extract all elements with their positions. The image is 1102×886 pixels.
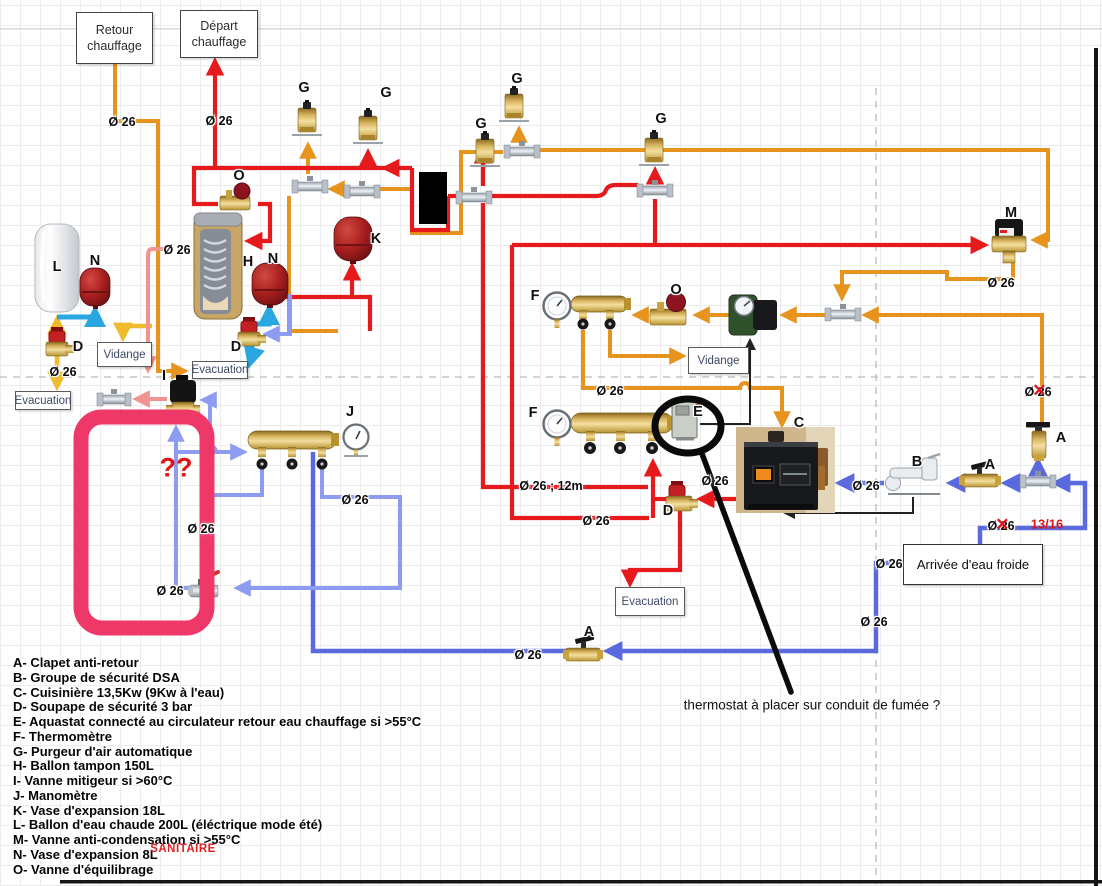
label-box-evacuation-bottom: Evacuation [615,587,685,616]
legend-item-b: B- Groupe de sécurité DSA [13,670,180,685]
pipe-size-label: Ø 26 [156,584,183,598]
component-letter-o: O [233,168,244,184]
label-box-retour-chauffage: Retour chauffage [76,12,153,64]
label-box-evacuation-left: Evacuation [15,391,71,410]
component-letter-d: D [231,339,241,355]
thermometer-icons [544,293,571,447]
annotation-question-marks: ?? [160,453,193,484]
legend-item-e: E- Aquastat connecté au circulateur reto… [13,714,421,729]
pipe-size-label: Ø 26 [987,519,1014,533]
pipe-size-label: Ø 26 [860,615,887,629]
legend-item-d: D- Soupape de sécurité 3 bar [13,699,192,714]
component-letter-g: G [298,80,309,96]
component-letter-n: N [90,253,100,269]
annotation-shapes [81,399,791,692]
bottom-border [60,880,1102,884]
pipe-size-label: Ø 26 [987,276,1014,290]
annotation-pipe-ratio: 13/16 [1031,517,1064,532]
pipe-size-label: Ø 26 [205,114,232,128]
diagram-canvas: Ø 26Ø 26Ø 26Ø 26Ø 26Ø 26Ø 26Ø 26Ø 26 ; 1… [0,0,1102,886]
component-letter-i: I [162,368,166,384]
pipe-size-label: Ø 26 [596,384,623,398]
legend-item-c: C- Cuisinière 13,5Kw (9Kw à l'eau) [13,685,224,700]
pipe-size-label: Ø 26 [701,474,728,488]
component-letter-f: F [531,288,540,304]
legend-item-g: G- Purgeur d'air automatique [13,744,192,759]
right-border [1094,48,1098,886]
pipe-size-label: Ø 26 [582,514,609,528]
buffer-tank-icon [194,213,242,319]
component-letter-g: G [511,71,522,87]
pipe-size-label: Ø 26 [341,493,368,507]
pipe-size-label: Ø 26 [514,648,541,662]
component-letter-c: C [794,415,804,431]
component-letter-d: D [73,339,83,355]
component-letter-a: A [985,457,995,473]
component-letter-a: A [584,624,594,640]
pipe-size-label: Ø 26 ; 12m [519,479,582,493]
annotation-sanitaire: SANITAIRE [150,843,216,855]
component-letter-o: O [670,282,681,298]
component-letter-b: B [912,454,922,470]
component-letter-a: A [1056,430,1066,446]
component-letter-g: G [475,116,486,132]
label-box-vidange-left: Vidange [97,342,152,367]
legend-item-a: A- Clapet anti-retour [13,655,139,670]
legend-item-n: N- Vase d'expansion 8L [13,847,158,862]
pipe-size-label: Ø 26 [852,479,879,493]
anti-condensation-valve-icon [992,219,1026,263]
aquastat-icon [672,401,710,441]
component-letter-k: K [371,231,381,247]
cookstove-icon [736,427,835,513]
component-letter-l: L [53,259,62,275]
component-letter-e: E [693,404,703,420]
label-box-evacuation-mid: Evacuation [192,361,248,379]
component-letter-f: F [529,405,538,421]
pipe-size-label: Ø 26 [187,522,214,536]
manometer-icon [344,425,369,458]
component-letter-d: D [663,503,673,519]
pipe-size-label: Ø 26 [875,557,902,571]
annotation-thermostat-note: thermostat à placer sur conduit de fumée… [684,698,941,713]
legend-item-h: H- Ballon tampon 150L [13,758,154,773]
label-box-vidange-right: Vidange [688,347,749,374]
pipe-size-label: Ø 26 [108,115,135,129]
legend-item-k: K- Vase d'expansion 18L [13,803,165,818]
component-letter-g: G [655,111,666,127]
legend-item-o: O- Vanne d'équilibrage [13,862,153,877]
component-letter-m: M [1005,205,1017,221]
component-letter-g: G [380,85,391,101]
component-letter-h: H [243,254,253,270]
component-letter-j: J [346,404,354,420]
label-box-arrivee-eau-froide: Arrivée d'eau froide [903,544,1043,585]
label-box-depart-chauffage: Départ chauffage [180,10,258,58]
legend-item-f: F- Thermomètre [13,729,112,744]
legend-item-j: J- Manomètre [13,788,98,803]
pipe-size-label: Ø 26 [163,243,190,257]
pipe-size-label: Ø 26 [1024,385,1051,399]
heat-exchanger-block [419,172,447,224]
pipe-size-label: Ø 26 [49,365,76,379]
legend-item-i: I- Vanne mitigeur si >60°C [13,773,172,788]
legend-item-l: L- Ballon d'eau chaude 200L (éléctrique … [13,817,322,832]
component-letter-n: N [268,251,278,267]
manifold-icons [248,296,676,470]
circulator-pump-icon [729,295,777,335]
